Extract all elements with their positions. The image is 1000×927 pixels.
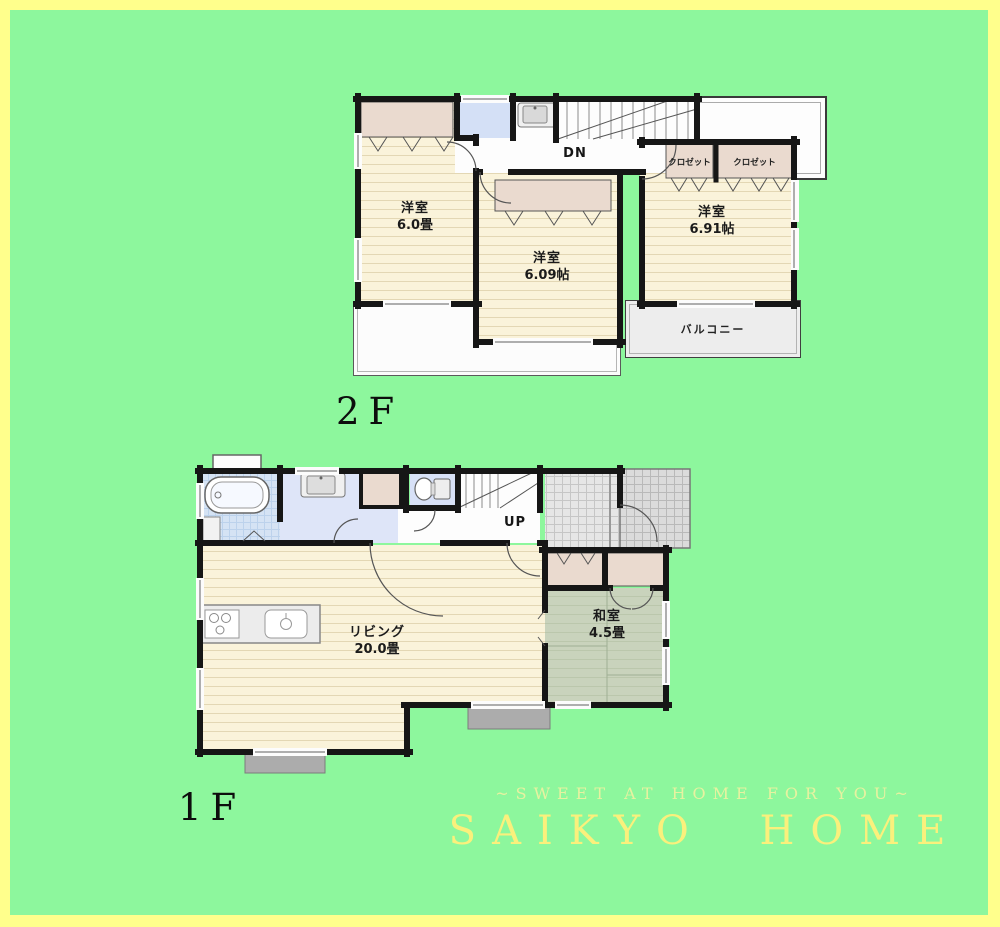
- stairs-up-label: UP: [491, 515, 539, 530]
- floor-label-1f: 1F: [178, 786, 245, 829]
- floor-plan-1f: リビング 20.0畳 和室 4.5畳 UP: [195, 453, 695, 775]
- room-label-2f-center: 洋室 6.09帖: [497, 251, 597, 285]
- footer-tagline: ~SWEET AT HOME FOR YOU~: [420, 784, 990, 803]
- closet-japanese-room: [606, 553, 666, 586]
- floor-label-2f: 2F: [336, 390, 403, 433]
- staircase-2f: [558, 99, 696, 139]
- room-label-2f-east: 洋室 6.91帖: [662, 205, 762, 239]
- footer: ~SWEET AT HOME FOR YOU~ SAIKYO HOME: [420, 784, 990, 854]
- room-name: 洋室: [698, 205, 726, 220]
- room-name: 和室: [593, 609, 621, 624]
- storage-1f: [361, 472, 401, 507]
- room-label-japanese: 和室 4.5畳: [557, 609, 657, 643]
- brand-logo-text: SAIKYO HOME: [420, 808, 990, 854]
- room-name: 洋室: [401, 201, 429, 216]
- closet-center-bedroom: [495, 180, 611, 211]
- closet-west-bedroom: [361, 102, 453, 137]
- room-size: 6.91帖: [662, 222, 762, 239]
- entrance: [545, 470, 620, 548]
- closet-label-1: クロゼット: [666, 156, 713, 168]
- room-label-2f-west: 洋室 6.0畳: [363, 201, 467, 235]
- stairs-down-label: DN: [551, 146, 599, 161]
- washroom-2f: [459, 100, 511, 138]
- room-size: 4.5畳: [557, 626, 657, 643]
- room-label-living: リビング 20.0畳: [325, 625, 429, 659]
- page: バルコニー: [0, 0, 1000, 927]
- washbasin-icon-2f: [518, 103, 556, 127]
- bay-window-bath: [213, 455, 261, 469]
- room-name: 洋室: [533, 251, 561, 266]
- washbasin-icon-1f: [301, 473, 345, 497]
- room-name: リビング: [349, 625, 405, 640]
- terrace-step-center: [468, 707, 550, 729]
- closet-label-2: クロゼット: [717, 156, 792, 168]
- room-size: 20.0畳: [325, 642, 429, 659]
- room-size: 6.09帖: [497, 268, 597, 285]
- room-size: 6.0畳: [363, 218, 467, 235]
- entrance-porch: [620, 469, 690, 548]
- floor-plan-2f: バルコニー: [353, 93, 831, 380]
- kitchen-counter: [198, 605, 320, 643]
- closet-hall: [547, 553, 604, 586]
